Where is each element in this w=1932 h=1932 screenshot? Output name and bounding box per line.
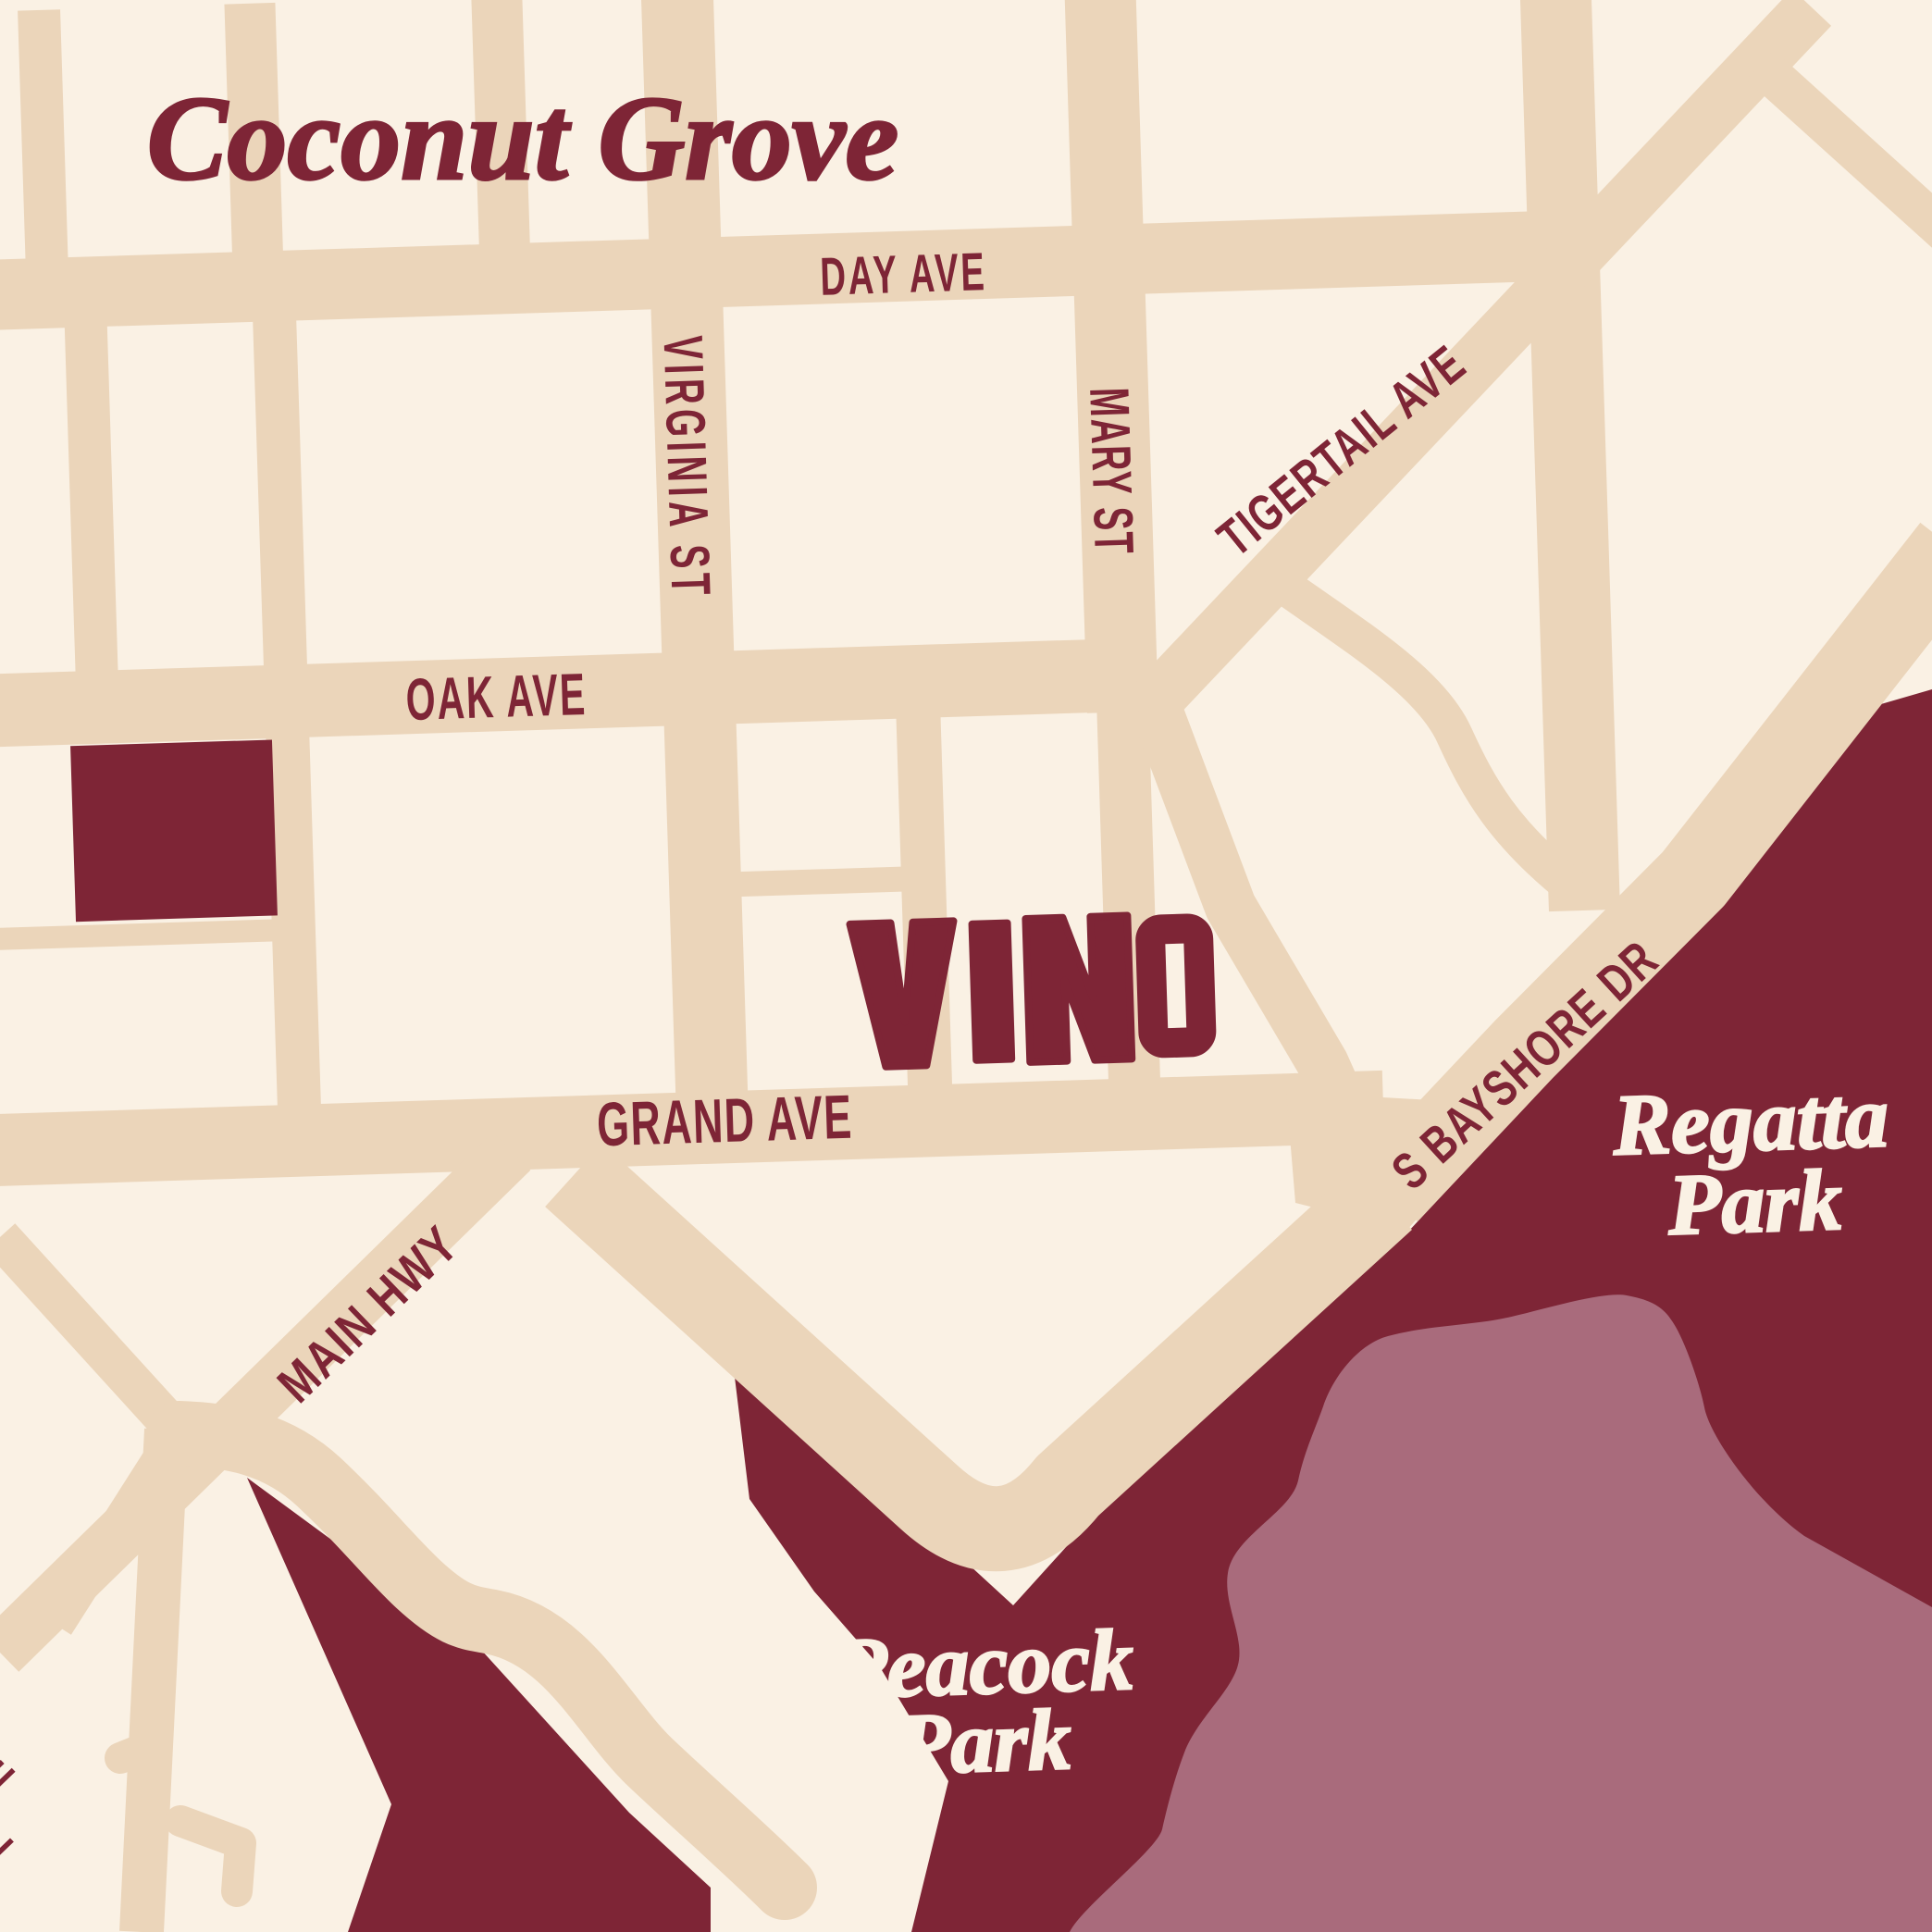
svg-text:OAK AVE: OAK AVE <box>405 662 588 734</box>
svg-text:Coconut Grove: Coconut Grove <box>147 72 899 205</box>
svg-text:GRAND AVE: GRAND AVE <box>596 1083 854 1160</box>
svg-text:Park: Park <box>895 1691 1072 1793</box>
svg-text:MARY ST: MARY ST <box>1078 387 1146 556</box>
svg-text:DAY AVE: DAY AVE <box>819 242 987 306</box>
svg-text:VIRGINIA ST: VIRGINIA ST <box>651 335 723 601</box>
svg-text:Park: Park <box>1666 1152 1843 1254</box>
